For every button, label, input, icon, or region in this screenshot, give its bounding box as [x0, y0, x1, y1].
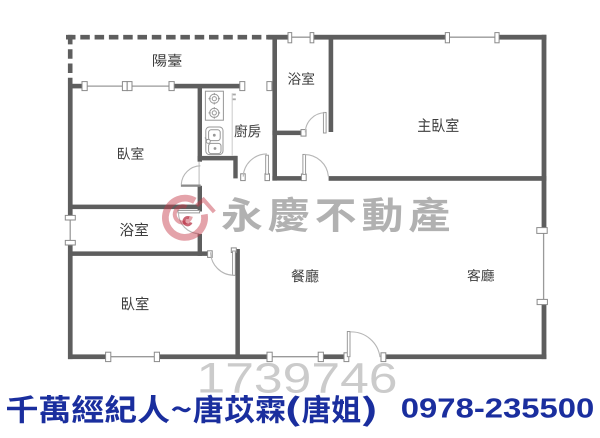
svg-text:1739746: 1739746 [197, 355, 398, 403]
svg-text:0978-235500: 0978-235500 [401, 393, 595, 424]
